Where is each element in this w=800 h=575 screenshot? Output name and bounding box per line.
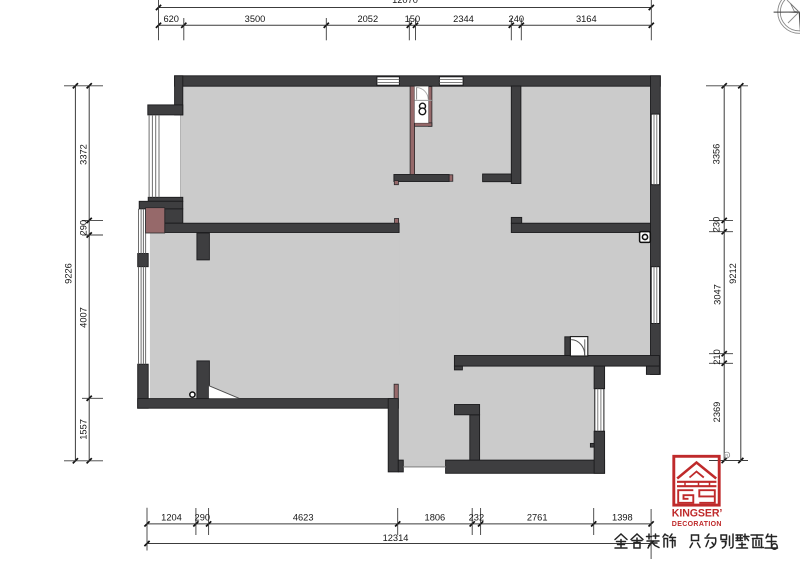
svg-text:2052: 2052 (357, 14, 378, 24)
svg-text:240: 240 (509, 14, 525, 24)
svg-text:150: 150 (405, 14, 421, 24)
svg-text:12070: 12070 (392, 0, 418, 5)
svg-text:1557: 1557 (79, 419, 89, 440)
svg-text:12314: 12314 (383, 533, 409, 543)
svg-text:230: 230 (712, 217, 722, 233)
svg-text:9226: 9226 (64, 263, 74, 284)
svg-text:1204: 1204 (161, 513, 182, 523)
svg-text:1398: 1398 (612, 513, 633, 523)
svg-text:3047: 3047 (713, 284, 723, 305)
svg-text:3356: 3356 (712, 144, 722, 165)
svg-text:290: 290 (195, 513, 211, 523)
svg-text:4623: 4623 (293, 513, 314, 523)
svg-text:2761: 2761 (527, 513, 548, 523)
svg-text:210: 210 (712, 349, 722, 365)
svg-text:9212: 9212 (728, 263, 738, 284)
svg-text:3500: 3500 (245, 14, 266, 24)
svg-text:290: 290 (79, 220, 89, 236)
svg-text:1806: 1806 (425, 513, 446, 523)
svg-text:DECORATION: DECORATION (672, 521, 722, 528)
svg-text:620: 620 (163, 14, 179, 24)
svg-text:2369: 2369 (712, 402, 722, 423)
svg-text:KINGSER’: KINGSER’ (672, 508, 723, 520)
svg-text:2344: 2344 (453, 14, 474, 24)
svg-text:4007: 4007 (79, 307, 89, 328)
svg-text:3164: 3164 (576, 14, 597, 24)
svg-text:3372: 3372 (79, 144, 89, 165)
svg-text:232: 232 (469, 513, 485, 523)
